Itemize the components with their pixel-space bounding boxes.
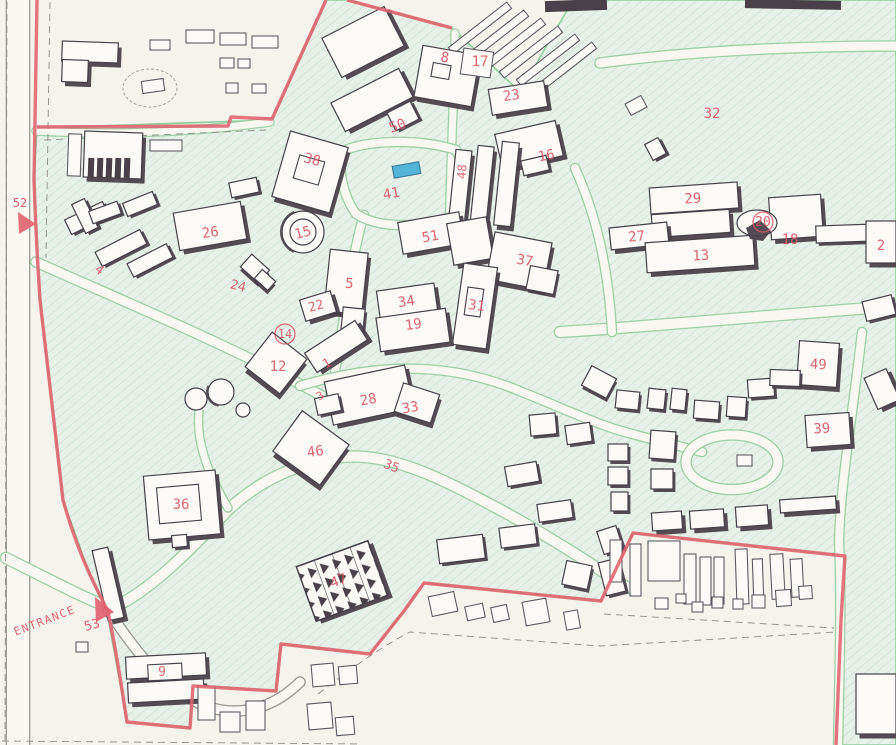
label-text: 49 <box>809 357 827 374</box>
building <box>128 679 209 708</box>
map-label-20: 20 <box>753 212 773 232</box>
map-label-32: 32 <box>704 106 721 122</box>
map-label-26: 26 <box>201 224 220 242</box>
campus-map-page: 524ENTRANCE53936473546283312141324261538… <box>0 0 896 745</box>
map-label-12: 12 <box>270 359 287 375</box>
building <box>307 702 333 730</box>
label-text: 39 <box>813 421 831 438</box>
building <box>335 716 355 736</box>
label-text: 23 <box>502 87 521 105</box>
label-text: 17 <box>472 54 489 70</box>
building <box>220 712 240 732</box>
building <box>655 598 668 609</box>
label-text: 52 <box>13 196 27 210</box>
label-text: 36 <box>173 497 190 513</box>
building <box>651 511 686 536</box>
building <box>733 599 743 609</box>
label-text: 2 <box>877 238 885 254</box>
map-label-9: 9 <box>158 665 166 680</box>
building <box>561 561 594 593</box>
building <box>76 642 88 652</box>
building <box>124 158 131 178</box>
label-text: 26 <box>201 224 220 242</box>
building <box>735 549 749 604</box>
building <box>752 595 765 608</box>
map-label-17: 17 <box>472 54 489 70</box>
building <box>238 59 250 68</box>
map-label-39: 39 <box>813 421 831 438</box>
building <box>608 444 630 464</box>
building <box>737 455 752 466</box>
map-label-34: 34 <box>397 293 416 311</box>
map-label-41: 41 <box>382 185 401 204</box>
campus-map-svg: 524ENTRANCE53936473546283312141324261538… <box>0 0 896 745</box>
building <box>745 0 841 10</box>
building <box>676 594 686 603</box>
building <box>647 388 669 413</box>
map-label-23: 23 <box>502 87 521 105</box>
storage-tank <box>185 388 207 410</box>
building <box>499 524 540 552</box>
building <box>648 541 680 581</box>
building <box>311 663 335 687</box>
building <box>141 79 164 94</box>
building <box>752 559 763 599</box>
building <box>115 158 122 178</box>
label-text: 20 <box>755 215 771 230</box>
label-text: 12 <box>270 359 287 375</box>
building <box>198 686 215 720</box>
building <box>226 83 238 93</box>
building <box>522 598 550 626</box>
building <box>770 369 803 389</box>
building <box>465 603 486 620</box>
map-label-18: 18 <box>782 232 799 248</box>
building <box>220 58 234 68</box>
label-text: 48 <box>454 164 469 180</box>
building <box>150 140 182 151</box>
building <box>630 544 641 596</box>
label-text: 41 <box>382 185 401 204</box>
map-label-5: 5 <box>344 276 354 293</box>
map-label-49: 49 <box>809 357 827 374</box>
label-text: 46 <box>306 443 325 461</box>
building <box>338 665 358 685</box>
storage-tank <box>236 403 250 417</box>
building <box>186 30 214 43</box>
building <box>856 674 896 739</box>
building <box>529 413 559 439</box>
map-label-13: 13 <box>692 248 710 265</box>
building <box>608 467 630 488</box>
building <box>735 505 772 532</box>
map-label-16: 16 <box>537 147 556 166</box>
label-text: 37 <box>515 252 534 271</box>
map-label-28: 28 <box>359 391 378 410</box>
building <box>97 158 104 178</box>
storage-tank <box>208 379 234 405</box>
building <box>564 610 581 630</box>
building <box>106 158 113 178</box>
map-label-27: 27 <box>628 228 646 245</box>
label-text: 13 <box>692 248 710 265</box>
label-text: 34 <box>397 293 416 311</box>
label-text: 9 <box>158 665 166 680</box>
map-label-48: 48 <box>454 164 469 180</box>
label-text: 5 <box>344 276 354 293</box>
building <box>220 33 246 45</box>
building <box>692 602 703 612</box>
label-text: 16 <box>537 147 556 166</box>
building <box>252 36 278 48</box>
building <box>670 388 690 414</box>
building <box>565 422 595 448</box>
label-text: 28 <box>359 391 378 410</box>
building <box>651 469 675 492</box>
building <box>700 557 711 605</box>
building <box>615 390 642 414</box>
map-label-36: 36 <box>173 497 190 513</box>
label-text: 32 <box>704 106 721 122</box>
building <box>67 134 81 176</box>
label-text: 33 <box>401 399 420 418</box>
map-label-31: 31 <box>467 297 486 315</box>
building <box>525 266 560 298</box>
building <box>799 586 813 600</box>
map-label-33: 33 <box>401 399 420 418</box>
label-text: 29 <box>684 191 702 208</box>
building <box>775 589 791 606</box>
building <box>61 60 91 88</box>
map-label-51: 51 <box>421 228 440 247</box>
building <box>611 492 630 514</box>
map-label-46: 46 <box>306 443 325 461</box>
label-text: 14 <box>278 327 292 341</box>
map-label-37: 37 <box>515 252 534 271</box>
building <box>491 605 510 623</box>
building <box>252 84 266 93</box>
building <box>150 40 170 50</box>
map-label-29: 29 <box>684 191 702 208</box>
building <box>88 158 95 178</box>
building <box>689 509 728 534</box>
label-text: 51 <box>421 228 440 247</box>
map-label-19: 19 <box>404 316 423 334</box>
map-label-2: 2 <box>877 238 885 254</box>
building <box>649 430 678 463</box>
building <box>693 400 722 423</box>
label-text: 27 <box>628 228 646 245</box>
building <box>726 396 749 420</box>
label-text: 18 <box>782 232 799 248</box>
building <box>712 597 723 608</box>
building <box>246 701 265 730</box>
map-label-52: 52 <box>13 196 27 210</box>
label-text: 19 <box>404 316 423 334</box>
label-text: 31 <box>467 297 486 315</box>
